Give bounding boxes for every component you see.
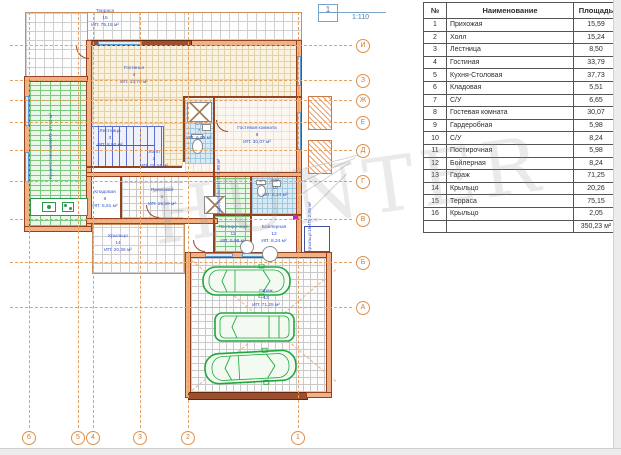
table-cell: 12	[424, 157, 447, 170]
kitchen-counter	[30, 198, 88, 216]
axis-marker-2: 2	[181, 431, 195, 445]
table-cell: Гардеробная	[447, 119, 574, 132]
table-row: 6Кладовая5,51	[424, 81, 619, 94]
table-cell: 5,98	[574, 119, 619, 132]
table-row: 8Гостевая комната30,07	[424, 107, 619, 120]
table-cell: 2	[424, 31, 447, 44]
table-cell: 5,98	[574, 144, 619, 157]
axis-marker-В: В	[356, 213, 370, 227]
table-cell: 33,79	[574, 56, 619, 69]
axis-marker-А: А	[356, 301, 370, 315]
axis-marker-И: И	[356, 39, 370, 53]
axis-line-vertical	[93, 12, 94, 428]
axis-marker-З: З	[356, 74, 370, 88]
room-label-wc10: С/У10ИП: 8,24 м²	[255, 179, 295, 200]
axis-marker-Ж: Ж	[356, 94, 370, 108]
table-cell: Прихожая	[447, 19, 574, 32]
room-label-stairs: Лестница3ИП: 8,50 м²	[92, 129, 128, 150]
total-empty-cell	[424, 220, 447, 233]
burner-icon	[64, 204, 67, 207]
axis-marker-6: 6	[22, 431, 36, 445]
room-label-porch16: Крыльцо16ИП: 2,05 м²	[307, 228, 316, 252]
table-cell: 9	[424, 119, 447, 132]
table-row: 12Бойлерная8,24	[424, 157, 619, 170]
table-cell: 16	[424, 207, 447, 220]
table-cell: 8,24	[574, 132, 619, 145]
table-cell: Гостевая комната	[447, 107, 574, 120]
table-row: 16Крыльцо2,05	[424, 207, 619, 220]
room-label-guest: Гостевая комната8ИП: 30,07 м²	[226, 126, 288, 147]
axis-line-horizontal	[10, 45, 352, 46]
table-cell: Кухня-Столовая	[447, 69, 574, 82]
table-cell: С/У	[447, 94, 574, 107]
axis-marker-1: 1	[291, 431, 305, 445]
garage-door	[188, 392, 308, 400]
total-empty-cell	[447, 220, 574, 233]
axis-marker-Д: Д	[356, 144, 370, 158]
room-label-hall: Холл2ИП: 15,24 м²	[136, 150, 172, 171]
table-cell: Бойлерная	[447, 157, 574, 170]
table-cell: 15	[424, 195, 447, 208]
table-cell: 4	[424, 56, 447, 69]
room-label-entry: Прихожая1ИП: 15,59 м²	[140, 188, 184, 209]
table-cell: Холл	[447, 31, 574, 44]
table-cell: 2,05	[574, 207, 619, 220]
pilaster-top	[308, 96, 332, 130]
page-edge	[0, 448, 621, 455]
wall	[24, 226, 92, 232]
table-cell: 6,65	[574, 94, 619, 107]
axis-line-vertical	[188, 12, 189, 428]
header-area: Площадь	[574, 3, 619, 19]
view-title-mark: 1	[318, 4, 338, 22]
table-cell: 5	[424, 69, 447, 82]
axis-line-vertical	[29, 12, 30, 428]
axis-marker-Е: Е	[356, 116, 370, 130]
partition	[183, 96, 302, 98]
door-arc	[193, 240, 205, 252]
table-cell: 8,50	[574, 44, 619, 57]
scale-label: 1:110	[352, 14, 369, 21]
table-cell: 30,07	[574, 107, 619, 120]
table-cell: 13	[424, 170, 447, 183]
room-label-terrace: Терраса15ИП: 75,15 м²	[82, 9, 128, 30]
table-row: 4Гостиная33,79	[424, 56, 619, 69]
area-table-body: 1Прихожая15,592Холл15,243Лестница8,504Го…	[424, 19, 619, 221]
table-row: 2Холл15,24	[424, 31, 619, 44]
axis-marker-Б: Б	[356, 256, 370, 270]
table-row: 7С/У6,65	[424, 94, 619, 107]
axis-line-horizontal	[10, 262, 352, 263]
room-label-wardrobe: Гардеробная9ИП: 5,98 м²	[216, 180, 225, 216]
title-mark-line	[338, 12, 386, 13]
table-cell: 3	[424, 44, 447, 57]
area-table-total-row: 350,23 м²	[424, 220, 619, 233]
table-cell: Гостиная	[447, 56, 574, 69]
shower-icon	[187, 102, 212, 122]
table-cell: Постирочная	[447, 144, 574, 157]
axis-line-horizontal	[10, 80, 352, 81]
table-row: 15Терраса75,15	[424, 195, 619, 208]
table-row: 10С/У8,24	[424, 132, 619, 145]
table-row: 3Лестница8,50	[424, 44, 619, 57]
room-label-porch14: Крыльцо14ИП: 20,26 м²	[94, 234, 142, 255]
table-row: 5Кухня-Столовая37,73	[424, 69, 619, 82]
table-cell: 37,73	[574, 69, 619, 82]
burner-icon	[69, 207, 72, 210]
room-label-boiler: Бойлерная12ИП: 8,24 м²	[252, 225, 296, 246]
table-cell: 6	[424, 81, 447, 94]
table-cell: 71,25	[574, 170, 619, 183]
table-row: 9Гардеробная5,98	[424, 119, 619, 132]
table-cell: 15,59	[574, 19, 619, 32]
axis-line-vertical	[78, 12, 79, 428]
table-cell: 8,24	[574, 157, 619, 170]
area-table-header-row: № Наименование Площадь	[424, 3, 619, 19]
room-label-living: Гостиная4ИП: 33,79 м²	[108, 66, 160, 87]
axis-line-vertical	[298, 12, 299, 428]
drawing-sheet: Терраса15ИП: 75,15 м²Гостиная4ИП: 33,79 …	[0, 0, 621, 455]
room-label-laundry: Постирочная11ИП: 5,98 м²	[212, 225, 254, 246]
axis-marker-5: 5	[71, 431, 85, 445]
sink-drain-icon	[47, 205, 51, 209]
axis-marker-4: 4	[86, 431, 100, 445]
table-row: 1Прихожая15,59	[424, 19, 619, 32]
table-cell: С/У	[447, 132, 574, 145]
table-cell: Терраса	[447, 195, 574, 208]
table-cell: Крыльцо	[447, 207, 574, 220]
page-edge	[613, 0, 621, 455]
view-number: 1	[319, 5, 337, 13]
table-row: 14Крыльцо20,26	[424, 182, 619, 195]
wall	[86, 172, 302, 177]
table-cell: 11	[424, 144, 447, 157]
boiler-icon	[262, 246, 278, 262]
axis-line-vertical	[140, 12, 141, 428]
table-cell: Лестница	[447, 44, 574, 57]
table-row: 11Постирочная5,98	[424, 144, 619, 157]
axis-line-horizontal	[10, 100, 352, 101]
axis-line-horizontal	[10, 307, 352, 308]
table-cell: 75,15	[574, 195, 619, 208]
table-cell: 10	[424, 132, 447, 145]
table-cell: Гараж	[447, 170, 574, 183]
table-cell: Крыльцо	[447, 182, 574, 195]
table-cell: 15,24	[574, 31, 619, 44]
floor-plan-canvas[interactable]: Терраса15ИП: 75,15 м²Гостиная4ИП: 33,79 …	[0, 0, 420, 455]
room-label-kitchen: Кухня-Столовая5ИП: 37,73 м²	[48, 108, 57, 184]
table-cell: 20,26	[574, 182, 619, 195]
axis-marker-3: 3	[133, 431, 147, 445]
table-cell: 14	[424, 182, 447, 195]
car-icon	[202, 346, 300, 389]
axis-line-horizontal	[10, 219, 352, 220]
wall	[306, 392, 332, 398]
axis-marker-Г: Г	[356, 175, 370, 189]
table-cell: 7	[424, 94, 447, 107]
view-number-sub	[319, 13, 337, 21]
table-cell: 5,51	[574, 81, 619, 94]
total-area-value: 350,23 м²	[574, 220, 619, 233]
table-cell: Кладовая	[447, 81, 574, 94]
leader-line	[310, 173, 347, 210]
car-icon	[213, 310, 297, 344]
wall-garage-right	[326, 252, 332, 398]
header-number: №	[424, 3, 447, 19]
axis-line-horizontal	[10, 181, 352, 182]
axis-line-horizontal	[10, 150, 352, 151]
area-table: № Наименование Площадь 1Прихожая15,592Хо…	[423, 2, 619, 233]
axis-line-horizontal	[10, 122, 352, 123]
table-cell: 8	[424, 107, 447, 120]
table-cell: 1	[424, 19, 447, 32]
table-row: 13Гараж71,25	[424, 170, 619, 183]
window	[205, 253, 233, 257]
header-name: Наименование	[447, 3, 574, 19]
partition	[215, 214, 302, 216]
